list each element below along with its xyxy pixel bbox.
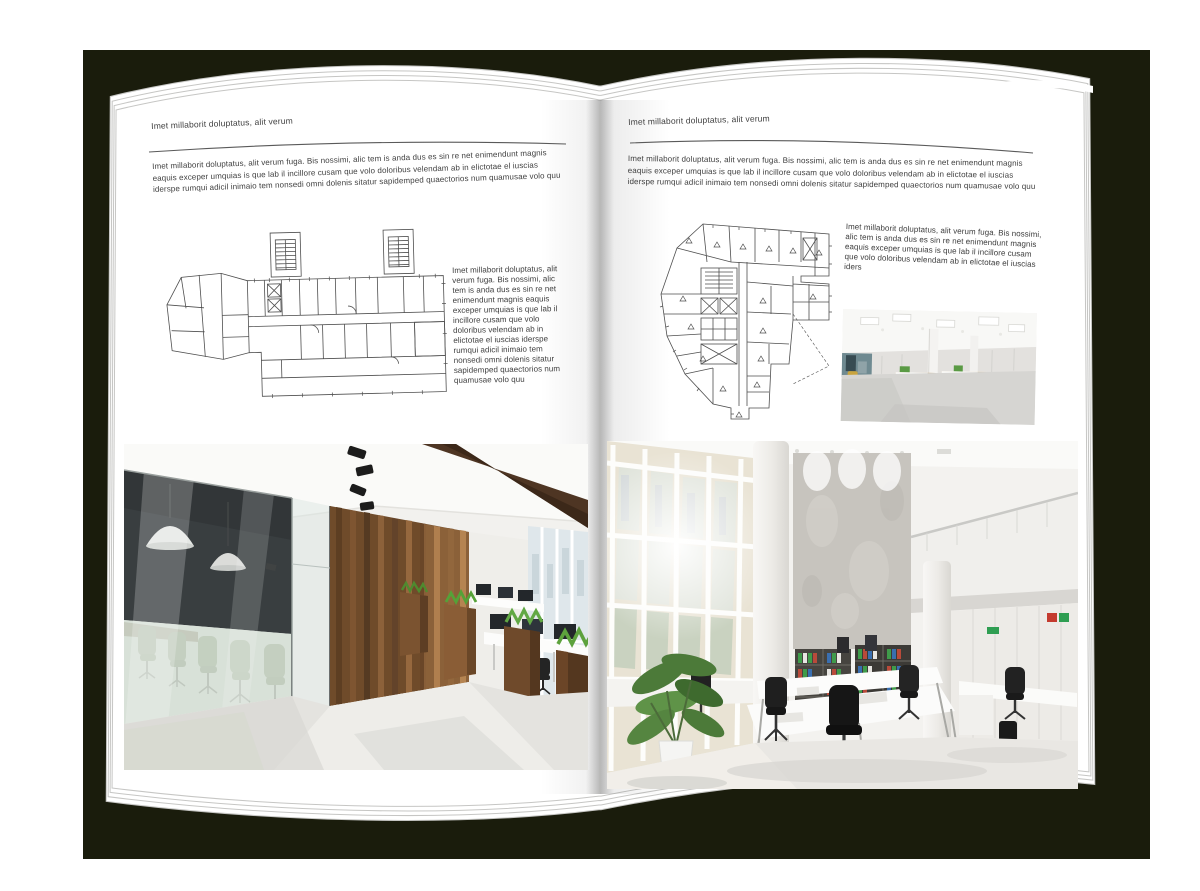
left-office-photo <box>124 444 588 770</box>
left-floor-plan <box>158 223 455 419</box>
right-header-rule <box>629 134 1035 156</box>
right-small-office-photo <box>841 309 1037 425</box>
left-side-text: Imet millaborit doluptatus, alit verum f… <box>452 264 568 386</box>
right-side-text: Imet millaborit doluptatus, alit verum f… <box>844 222 1044 280</box>
right-intro-paragraph: Imet millaborit doluptatus, alit verum f… <box>628 153 1040 193</box>
right-office-photo <box>607 441 1078 789</box>
right-floor-plan <box>643 216 843 420</box>
magazine-mockup-stage: Imet millaborit doluptatus, alit verum I… <box>0 0 1200 891</box>
